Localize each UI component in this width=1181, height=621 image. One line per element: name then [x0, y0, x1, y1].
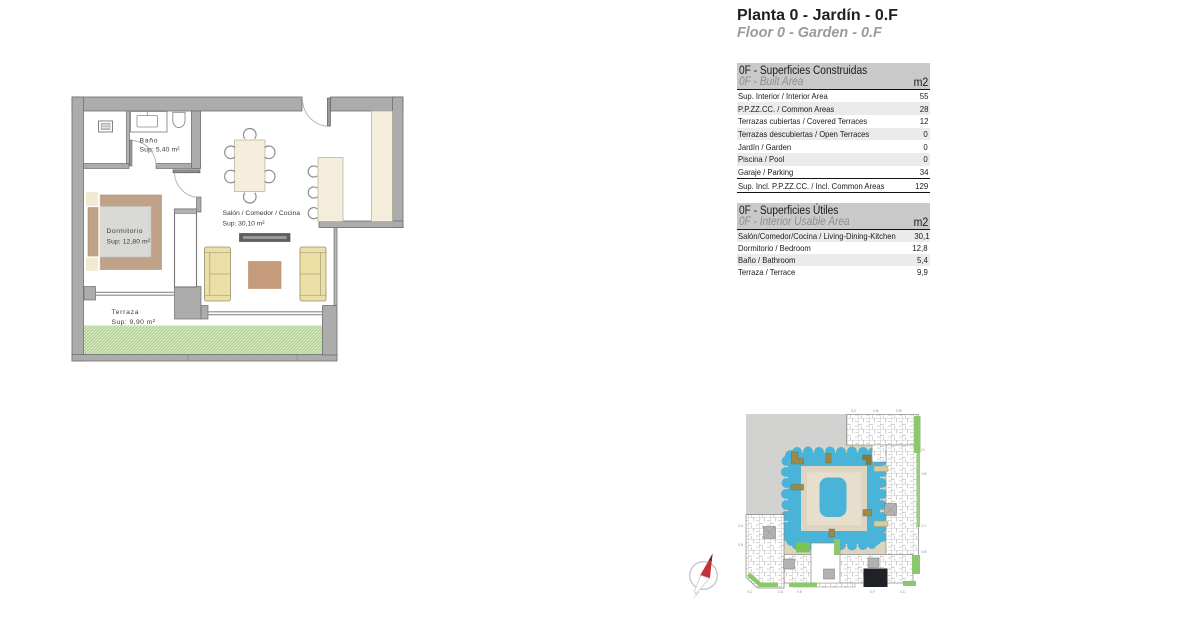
svg-text:0.M: 0.M [873, 409, 879, 413]
svg-text:Sup: 9,90 m²: Sup: 9,90 m² [112, 319, 156, 326]
svg-text:Salón / Comedor / Cocina: Salón / Comedor / Cocina [223, 210, 301, 217]
svg-text:Sup: 30,10 m²: Sup: 30,10 m² [223, 220, 266, 227]
svg-text:Sup: 5,40 m²: Sup: 5,40 m² [140, 146, 181, 153]
svg-text:0.F: 0.F [870, 590, 875, 594]
svg-text:Dormitorio: Dormitorio [107, 228, 143, 235]
svg-text:0.E: 0.E [797, 590, 803, 594]
svg-text:0.I: 0.I [922, 448, 926, 452]
svg-text:Baño: Baño [140, 138, 158, 145]
svg-text:0.C: 0.C [900, 590, 906, 594]
svg-text:0.C: 0.C [747, 590, 753, 594]
svg-text:0.B: 0.B [922, 550, 928, 554]
svg-text:0.M: 0.M [896, 409, 902, 413]
svg-text:0.J: 0.J [922, 524, 927, 528]
svg-text:0.A: 0.A [738, 524, 744, 528]
svg-text:0.B: 0.B [738, 543, 744, 547]
svg-text:0.0: 0.0 [851, 409, 856, 413]
svg-text:0.D: 0.D [778, 590, 784, 594]
svg-text:0.B: 0.B [922, 472, 928, 476]
svg-text:Sup: 12,80 m²: Sup: 12,80 m² [107, 238, 151, 245]
svg-text:Terraza: Terraza [112, 309, 139, 316]
